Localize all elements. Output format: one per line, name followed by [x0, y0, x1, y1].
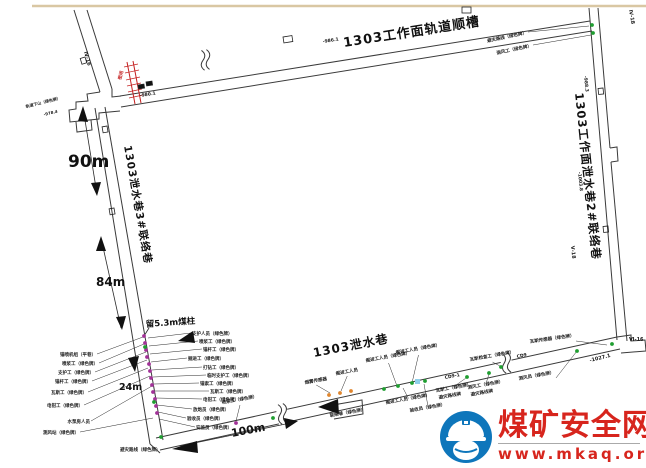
annotation-label: 瓦斯工（绿色牌）: [51, 389, 87, 396]
leader-line: [412, 355, 419, 383]
marker-dot-g: [396, 384, 400, 388]
annotation-label: 轨道下山（绿色牌）: [25, 94, 61, 109]
annotation-label: -988.3: [582, 76, 590, 93]
equipment-symbol: [462, 7, 471, 13]
watermark-site-url: www.mkaq.org: [498, 445, 646, 463]
watermark-site-name: 煤矿安全网: [498, 411, 646, 441]
marker-dot-m: [148, 369, 152, 373]
leader-line: [154, 383, 199, 384]
marker-dot-m: [143, 341, 147, 345]
marker-dot-m: [151, 390, 155, 394]
leader-line: [556, 351, 577, 378]
arrowhead: [96, 236, 106, 251]
marker-dot-m: [147, 362, 151, 366]
leader-line: [156, 398, 202, 399]
marker-dot-g: [610, 342, 614, 346]
watermark: 煤矿安全网 www.mkaq.org: [438, 406, 646, 468]
marker-dot-m: [234, 421, 238, 425]
annotation-label: 支护工（绿色牌）: [58, 369, 94, 376]
leader-line: [158, 412, 186, 418]
marker-dot-g: [410, 381, 414, 385]
marker-dot-g: [152, 400, 156, 404]
marker-dot-g: [591, 31, 595, 35]
leader-line: [151, 358, 187, 362]
annotation-label: -1027.1: [589, 353, 612, 364]
marker-dot-o: [349, 389, 353, 393]
annotation-label: 安监员（绿色牌）: [196, 424, 232, 431]
leader-line: [80, 418, 153, 432]
annotation-label: 瓦斯传感器（绿色牌）: [529, 332, 575, 345]
label-top-gateway: 1303工作面轨道顺槽: [342, 14, 481, 51]
arrowhead: [318, 399, 339, 414]
dim-84m: 84m: [96, 275, 125, 289]
annotation-label: 锚索工（绿色牌）: [200, 380, 236, 387]
annotation-label: 掘进工人员（绿色牌）: [395, 341, 441, 356]
marker-dot-m: [142, 334, 146, 338]
arrowhead: [78, 106, 88, 122]
dim-coal-pillar: 留5.3m煤柱: [145, 316, 196, 330]
annotation-label: 避灾路线（绿色牌）: [120, 446, 161, 453]
tunnel-break: [198, 49, 212, 70]
equipment-symbol: [138, 84, 145, 89]
leader-line: [341, 376, 347, 391]
mkaq-logo-icon: [438, 409, 494, 465]
annotation-label: -980.1: [139, 91, 156, 99]
annotation-label: 测风员（绿色牌）: [518, 369, 555, 382]
annotation-label: 锚杆工（绿色牌）: [203, 346, 239, 353]
annotation-label: 放炮员（绿色牌）: [192, 406, 229, 413]
annotation-label: 打钻工（绿色牌）: [203, 364, 239, 371]
annotation-label: 瓦斯工（绿色牌）: [435, 381, 472, 394]
marker-dot-o: [327, 393, 331, 397]
mine-layout-diagram: 1303工作面轨道顺槽 1303工作面泄水巷2#联络巷 1303泄水巷3#联络巷…: [0, 0, 646, 468]
annotation-label: 临时支护工（绿色牌）: [207, 372, 252, 379]
scanned-mine-diagram: 1303工作面轨道顺槽 1303工作面泄水巷2#联络巷 1303泄水巷3#联络巷…: [0, 0, 646, 468]
marker-dot-g: [159, 435, 163, 439]
marker-dot-m: [154, 404, 158, 408]
marker-dot-g: [271, 416, 275, 420]
annotation-label: 测风站（绿色牌）: [43, 429, 79, 436]
label-bottom-drain: 1303泄水巷: [312, 331, 390, 360]
marker-dot-g: [575, 349, 579, 353]
annotation-label: CD9: [516, 352, 527, 360]
marker-dot-g: [382, 387, 386, 391]
equipment-symbol: [146, 81, 153, 86]
annotation-label: Ⅵ-16: [629, 337, 644, 343]
label-left-connection: 1303泄水巷3#联络巷: [121, 144, 155, 265]
leader-line: [316, 385, 330, 393]
annotation-label: 喷浆工（绿色牌）: [62, 360, 98, 367]
marker-dot-g: [143, 345, 147, 349]
annotation-label: 烟雾传感器: [304, 375, 328, 386]
annotation-label: 水泵房人员: [68, 418, 91, 425]
arrowhead: [91, 182, 101, 196]
annotation-label: 掘进工人员: [335, 366, 359, 377]
marker-dot-m: [155, 411, 159, 415]
leader-line: [533, 35, 591, 45]
marker-dot-g: [487, 371, 491, 375]
refuge-chamber-notch: [610, 147, 618, 162]
annotation-label: 电钳工（绿色牌）: [47, 402, 83, 409]
annotation-label: 验收员（绿色牌）: [187, 415, 223, 422]
leader-line: [389, 363, 398, 386]
leader-line: [150, 349, 202, 354]
watermark-divider: [498, 443, 640, 444]
annotation-label: 掘进工（绿色牌）: [188, 355, 224, 362]
equipment-symbol: [102, 126, 108, 133]
annotation-label: 密闭: [116, 70, 125, 81]
leader-line: [576, 341, 607, 345]
annotation-label: 喷浆工（绿色牌）: [199, 338, 235, 345]
annotation-label: Ⅳ-16: [82, 51, 92, 67]
dim-24m: 24m: [119, 382, 142, 393]
annotation-label: 瓦斯工（绿色牌）: [210, 388, 246, 395]
annotation-label: -986.1: [322, 37, 339, 45]
annotation-label: Ⅴ-18: [569, 246, 576, 260]
marker-dot-m: [149, 376, 153, 380]
annotation-label: 支护人员（绿色牌）: [192, 330, 233, 337]
watermark-text: 煤矿安全网 www.mkaq.org: [498, 411, 646, 463]
annotation-label: 测风工（绿色牌）: [467, 378, 504, 391]
leader-line: [152, 367, 202, 370]
equipment-symbol: [598, 88, 604, 94]
annotation-label: 锚喷机组（平巷）: [60, 351, 96, 358]
break-gap: [198, 49, 212, 70]
marker-dot-o: [338, 391, 342, 395]
leader-line: [157, 405, 192, 409]
dim-90m: 90m: [68, 152, 109, 172]
equipment-symbol: [283, 36, 293, 43]
marker-dot-m: [150, 383, 154, 387]
leader-line: [153, 375, 206, 377]
marker-dot-g: [465, 375, 469, 379]
marker-dot-g: [590, 23, 594, 27]
annotation-label: Ⅳ-18: [627, 9, 636, 25]
top-left-shaft-tunnel: [69, 10, 121, 132]
leader-line: [95, 352, 146, 372]
marker-dot-g: [423, 379, 427, 383]
annotation-label: -978.4: [43, 109, 58, 117]
leader-line: [236, 405, 240, 421]
annotation-label: 锚杆工（绿色牌）: [55, 378, 91, 385]
marker-dot-m: [145, 355, 149, 359]
marker-dot-g: [499, 365, 503, 369]
annotation-labels: 避灾路线（绿色牌）测风工（绿色牌）Ⅳ-18Ⅳ-16-988.3-1003.8Ⅴ-…: [25, 9, 644, 453]
annotation-label: 测风工（绿色牌）: [496, 42, 533, 56]
leader-line: [97, 337, 143, 354]
equipment-symbol: [415, 379, 420, 384]
